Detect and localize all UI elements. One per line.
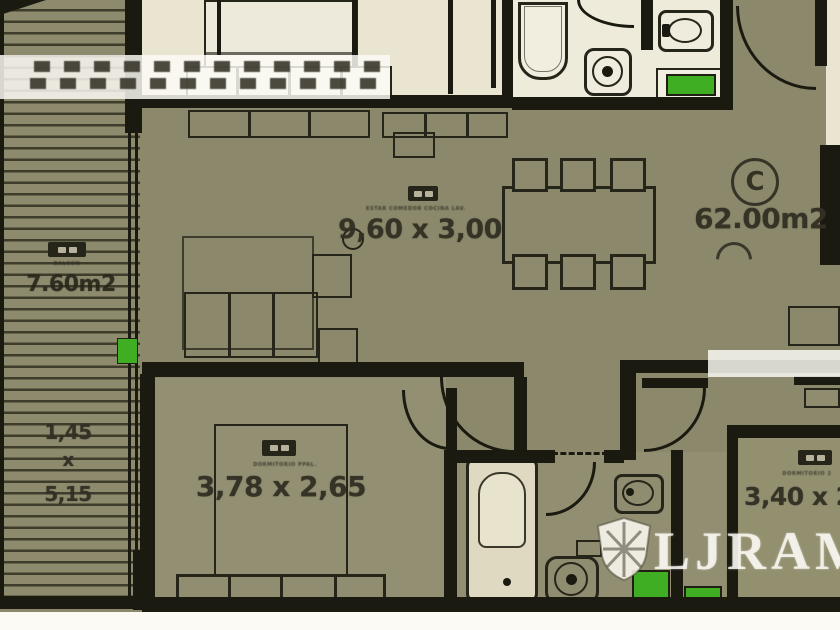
wall (0, 596, 150, 609)
green-item-bath1 (666, 74, 716, 96)
bathtub-top-inner (524, 6, 562, 72)
sofa-div (228, 294, 231, 356)
bedroom2-dims: 3,40 x 2 (744, 482, 840, 511)
watermark-marks (34, 61, 382, 72)
watermark-shield-icon (594, 516, 654, 582)
chair (512, 158, 548, 192)
balcony-times: x (30, 450, 106, 471)
bedroom1-dims: 3,78 x 2,65 (192, 470, 370, 503)
wall (641, 0, 653, 50)
bidet-bottom-tap (626, 488, 634, 496)
sofa-div (272, 294, 275, 356)
wall (794, 376, 840, 385)
bidet-top-tap (662, 24, 670, 37)
wall (720, 0, 733, 110)
watermark-brand: LJRAM (654, 520, 840, 582)
toilet-top-drain (602, 66, 613, 77)
outside-strip (0, 612, 840, 630)
sofa (184, 292, 318, 358)
wall (444, 450, 457, 602)
door-tag-icon (408, 186, 438, 201)
door-threshold-dashed (552, 452, 608, 461)
door-leaf (642, 378, 708, 388)
living-name: ESTAR COMEDOR COCINA LAV. (348, 206, 484, 212)
floor-plan: BALCON 7.60m2 1,45 x 5,15 ESTAR COMEDOR … (0, 0, 840, 630)
window-mullion (448, 0, 453, 94)
chair (560, 158, 596, 192)
wall (142, 362, 524, 377)
bidet-top-bowl (668, 18, 702, 43)
balcony-area: 7.60m2 (10, 272, 132, 297)
window-mullion (217, 0, 221, 55)
desk-right (788, 306, 840, 346)
toilet-bottom-drain (566, 574, 577, 585)
shelf-right (804, 388, 840, 408)
side-table (312, 254, 352, 298)
unit-area: 62.00m2 (682, 202, 840, 235)
wall (140, 374, 155, 604)
wall (815, 0, 827, 66)
green-item-balcony-door (117, 338, 138, 364)
wall (142, 597, 840, 612)
door-tag-icon (48, 242, 86, 257)
chair (610, 158, 646, 192)
chair (560, 254, 596, 290)
counter-div (466, 114, 469, 136)
kitchen-counter-left (188, 110, 370, 138)
wall (502, 0, 513, 100)
counter-div (248, 112, 251, 136)
balcony-width: 1,45 (30, 420, 106, 444)
door-tag-icon (798, 450, 832, 465)
living-dims: 9,60 x 3,00 (338, 214, 498, 245)
bedroom2-name: DORMITORIO 2 (772, 471, 840, 477)
balcony-depth: 5,15 (30, 482, 106, 506)
watermark-marks (30, 78, 380, 89)
chair (610, 254, 646, 290)
counter-div (308, 112, 311, 136)
wall (620, 360, 636, 460)
kitchen-box (393, 132, 435, 158)
balcony-name: BALCON (28, 261, 106, 267)
bathtub-bottom-inner (478, 472, 526, 548)
window-mullion (491, 0, 496, 88)
chair (512, 254, 548, 290)
wall (727, 425, 840, 438)
bedroom1-name: DORMITORIO PPAL. (230, 462, 340, 468)
bathtub-drain (503, 578, 511, 586)
dining-table (502, 186, 656, 264)
door-leaf (514, 377, 527, 453)
watermark-band-right (708, 350, 840, 377)
unit-circle-letter: C (731, 158, 779, 206)
corner-room-floor (826, 0, 840, 146)
door-tag-icon (262, 440, 296, 456)
wall (512, 97, 722, 110)
